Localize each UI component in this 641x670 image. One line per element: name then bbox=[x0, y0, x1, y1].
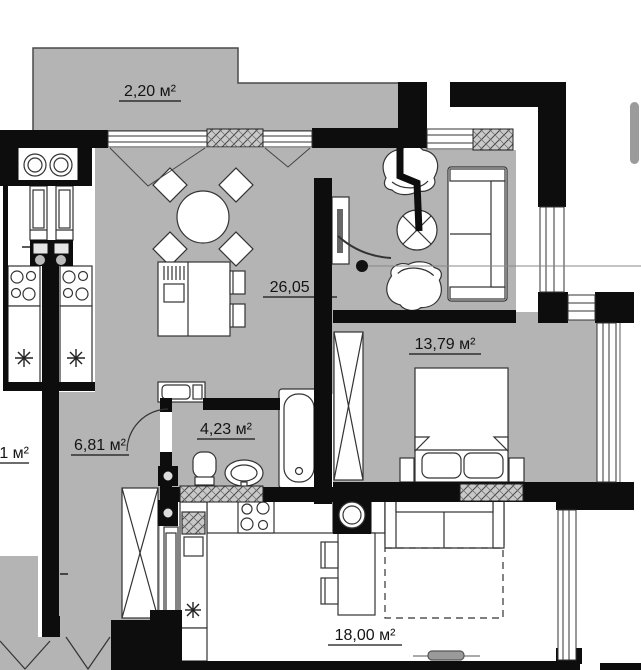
vent-asterisk-icon bbox=[185, 602, 201, 618]
door-handle-symbol bbox=[413, 651, 480, 660]
section-dot bbox=[356, 260, 368, 272]
tall-cupboard-icon bbox=[164, 527, 178, 619]
room-area-label-balcony: 2,20 м² bbox=[124, 83, 177, 100]
valve-icon bbox=[35, 255, 46, 266]
wall-segment bbox=[0, 130, 108, 148]
wall-segment bbox=[538, 292, 568, 323]
kitchen-counter bbox=[8, 306, 40, 384]
window bbox=[108, 131, 207, 147]
wall-segment bbox=[398, 82, 427, 130]
wall-segment bbox=[78, 146, 92, 186]
riser-valve-icon bbox=[163, 508, 173, 518]
wall-segment bbox=[600, 663, 641, 670]
wall-segment bbox=[538, 107, 566, 207]
floor-plan-drawing: 2,20 м² 26,05 м² 13,79 м² 6,81 м² 4,23 м… bbox=[0, 0, 641, 670]
kitchen-counter bbox=[180, 628, 207, 661]
wall-segment bbox=[556, 482, 634, 510]
stove-icon bbox=[8, 266, 40, 306]
wall-segment bbox=[312, 128, 427, 148]
hatched-opening bbox=[207, 129, 263, 147]
oven-icon bbox=[184, 537, 203, 556]
stove-icon bbox=[60, 266, 92, 306]
armchair-icon bbox=[383, 145, 437, 194]
room-floor-hallway-door-strip bbox=[58, 620, 113, 638]
riser-valve-icon bbox=[163, 471, 173, 481]
washing-machines-icon bbox=[18, 146, 78, 184]
window bbox=[263, 131, 312, 147]
nightstand-icon bbox=[400, 458, 414, 482]
room-area-label-bathroom: 4,23 м² bbox=[200, 421, 253, 438]
hatched-opening bbox=[460, 484, 523, 501]
room-area-label-bedroom: 13,79 м² bbox=[415, 336, 476, 353]
wall-segment bbox=[48, 616, 60, 637]
window bbox=[568, 295, 595, 320]
wardrobe-icon bbox=[334, 332, 363, 480]
room-area-label-neighbor-kitchen: 18,00 м² bbox=[335, 627, 396, 644]
valve-icon bbox=[56, 255, 67, 266]
wall-segment bbox=[18, 180, 78, 186]
bed-icon bbox=[415, 368, 508, 482]
wall-segment bbox=[0, 146, 18, 186]
room-floor-neighbor-hall bbox=[0, 556, 38, 637]
window bbox=[540, 207, 564, 292]
wall-segment bbox=[150, 610, 182, 622]
toilet-icon bbox=[193, 452, 216, 485]
utility-cabinets-icon bbox=[30, 186, 73, 240]
dining-table-icon bbox=[177, 191, 229, 243]
stove-icon bbox=[238, 500, 274, 533]
rug-outline bbox=[385, 548, 503, 618]
kitchen-island-icon bbox=[158, 262, 230, 336]
window bbox=[427, 129, 473, 149]
kitchen-counter bbox=[60, 306, 92, 384]
wall-partition bbox=[314, 178, 332, 504]
dining-chair-icon bbox=[321, 542, 338, 604]
room-area-label-hallway: 6,81 м² bbox=[74, 437, 127, 454]
hatched-opening bbox=[180, 486, 263, 502]
hatched-opening bbox=[473, 129, 513, 150]
wall-segment bbox=[42, 258, 59, 637]
tv-unit-icon bbox=[332, 197, 349, 264]
dining-table-icon bbox=[338, 533, 375, 615]
room-area-label-neighbor-partial: 1 м² bbox=[0, 445, 30, 462]
gas-meter-icon bbox=[54, 243, 69, 254]
wall-segment bbox=[3, 382, 95, 391]
floor-plan-page: 2,20 м² 26,05 м² 13,79 м² 6,81 м² 4,23 м… bbox=[0, 0, 641, 670]
wall-segment bbox=[203, 398, 280, 410]
wall-segment bbox=[111, 620, 182, 670]
bathtub-icon bbox=[279, 389, 319, 488]
sofa-icon bbox=[385, 500, 504, 548]
fridge-icon bbox=[182, 512, 205, 534]
wall-segment bbox=[450, 82, 566, 107]
room-floor-corridor bbox=[0, 637, 111, 670]
scrollbar-thumb[interactable] bbox=[630, 102, 639, 164]
wall-segment bbox=[182, 661, 580, 670]
sofa-icon bbox=[448, 167, 507, 301]
window bbox=[558, 510, 576, 660]
kitchen-counter bbox=[371, 500, 385, 533]
wall-segment bbox=[595, 292, 634, 323]
gas-meter-icon bbox=[33, 243, 48, 254]
wall-segment bbox=[333, 310, 516, 323]
room-floor-balcony bbox=[33, 48, 400, 131]
wardrobe-icon bbox=[122, 488, 158, 618]
nightstand-icon bbox=[509, 458, 524, 482]
window bbox=[597, 323, 620, 482]
